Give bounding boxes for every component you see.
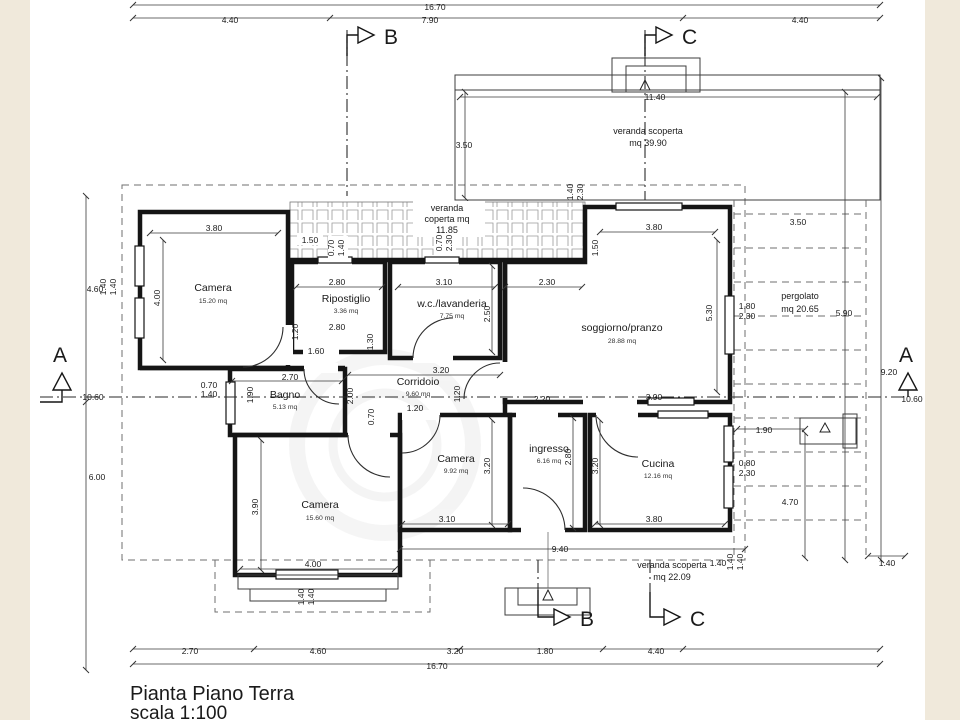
room-label-camera1: Camera — [194, 282, 232, 294]
dim-label: 2.30 — [539, 277, 556, 287]
window-camera1-a — [135, 246, 144, 286]
dim-label: 9.40 — [552, 544, 569, 554]
dim-label: 2.80 — [329, 277, 346, 287]
floor-plan-canvas: Camera 15.20 mq Ripostiglio 3.36 mq w.c.… — [0, 0, 960, 720]
dim-label: 1.40 — [879, 558, 896, 568]
dim-label: 3.20 — [447, 646, 464, 656]
dim-label: 4.40 — [792, 15, 809, 25]
section-letter-a-left: A — [53, 344, 67, 367]
dim-label: 0.70 — [434, 234, 444, 251]
window-north-b — [425, 257, 459, 263]
label-veranda-scoperta-top-1: veranda scoperta — [613, 126, 683, 136]
dim-label: 1.40 — [108, 278, 118, 295]
floor-plan-drawing: Camera 15.20 mq Ripostiglio 3.36 mq w.c.… — [0, 0, 960, 720]
dim-label: 0.70 — [366, 408, 376, 425]
dim-label: 1.50 — [302, 235, 319, 245]
section-letter-a-right: A — [899, 344, 913, 367]
window-cucina-right-a — [724, 426, 733, 462]
dim-label: 1.80 — [739, 301, 756, 311]
window-camera1-b — [135, 298, 144, 338]
label-veranda-scoperta-bottom-2: mq 22.09 — [653, 572, 691, 582]
dim-label: 5.30 — [704, 304, 714, 321]
label-veranda-coperta-2: coperta mq — [424, 214, 469, 224]
dim-label: 7.90 — [422, 15, 439, 25]
dim-label: 1.40 — [725, 553, 735, 570]
dim-label: 2.30 — [739, 311, 756, 321]
window-soggiorno-right — [725, 296, 734, 354]
room-label-ripostiglio: Ripostiglio — [322, 293, 371, 305]
dim-label: 6.00 — [89, 472, 106, 482]
dim-label: 2.80 — [563, 448, 573, 465]
dim-label: 4.40 — [648, 646, 665, 656]
window-soggiorno-top — [616, 203, 682, 210]
dim-label: 1.40 — [735, 553, 745, 570]
dim-label: 1.40 — [336, 239, 346, 256]
section-letter-b-top: B — [384, 26, 398, 49]
label-veranda-coperta-1: veranda — [431, 203, 464, 213]
dim-label: 1.40 — [710, 558, 727, 568]
dim-label: 3.20 — [482, 457, 492, 474]
room-label-wc: w.c./lavanderia — [416, 298, 487, 310]
dim-label: 1.50 — [590, 239, 600, 256]
dim-label: 3.20 — [433, 365, 450, 375]
dim-label: 1.20 — [290, 323, 300, 340]
dim-label: 0.80 — [739, 458, 756, 468]
dim-label: 0.70 — [326, 239, 336, 256]
dim-label: 3.90 — [250, 498, 260, 515]
room-label-cucina: Cucina — [642, 458, 675, 470]
dim-label: 2.20 — [534, 394, 551, 404]
dim-label: 2.70 — [182, 646, 199, 656]
dim-label: 3.80 — [206, 223, 223, 233]
room-area-corridoio: 9.60 mq — [406, 391, 431, 398]
dim-label: 3.80 — [646, 514, 663, 524]
room-area-cucina: 12.16 mq — [644, 473, 673, 480]
window-cucina-right-b — [724, 466, 733, 508]
dim-label: 4.60 — [310, 646, 327, 656]
section-letter-b-bottom: B — [580, 608, 594, 631]
label-veranda-scoperta-bottom-1: veranda scoperta — [637, 560, 707, 570]
dim-label: 1.40 — [201, 389, 218, 399]
label-pergolato-1: pergolato — [781, 291, 819, 301]
dim-label: 3.90 — [646, 392, 663, 402]
room-area-soggiorno: 28.88 mq — [608, 338, 637, 345]
dim-label: 1.40 — [565, 183, 575, 200]
dim-label: 11.40 — [645, 92, 666, 102]
window-bagno — [226, 382, 235, 424]
section-letter-c-bottom: C — [690, 608, 705, 631]
dim-label: 2.50 — [482, 305, 492, 322]
room-area-ingresso: 6.16 mq — [537, 458, 562, 465]
right-margin — [925, 0, 960, 720]
dim-label: 1.40 — [296, 588, 306, 605]
room-label-soggiorno: soggiorno/pranzo — [581, 322, 662, 334]
dim-label: 5.90 — [836, 308, 853, 318]
section-letter-c-top: C — [682, 26, 697, 49]
dim-label: 3.10 — [439, 514, 456, 524]
drawing-scale: scala 1:100 — [130, 703, 227, 720]
room-label-bagno: Bagno — [270, 389, 301, 401]
room-area-wc: 7.75 mq — [440, 313, 465, 320]
room-label-camera3: Camera — [437, 453, 475, 465]
dim-label: 2.80 — [329, 322, 346, 332]
window-cucina-top — [658, 411, 708, 418]
dim-label: 10.60 — [82, 392, 104, 402]
dim-label: 1.80 — [537, 646, 554, 656]
dim-label: 2.00 — [345, 387, 355, 404]
dim-label: 1.90 — [756, 425, 773, 435]
room-area-bagno: 5.13 mq — [273, 404, 298, 411]
dim-label: 10.60 — [901, 394, 923, 404]
room-area-camera2: 15.60 mq — [306, 515, 335, 522]
dim-label: 9.20 — [881, 367, 898, 377]
dim-label: 4.40 — [222, 15, 239, 25]
dim-label: 3.80 — [646, 222, 663, 232]
dim-label: 4.00 — [305, 559, 322, 569]
dim-label: 1.90 — [245, 386, 255, 403]
room-label-camera2: Camera — [301, 499, 339, 511]
dim-label: 1.40 — [306, 588, 316, 605]
dim-label: 4.00 — [152, 289, 162, 306]
dim-label: 3.20 — [590, 457, 600, 474]
room-area-camera3: 9.92 mq — [444, 468, 469, 475]
dim-label: 3.10 — [436, 277, 453, 287]
dim-label: 2.30 — [739, 468, 756, 478]
dim-label: 3.50 — [790, 217, 807, 227]
dim-label: 16.70 — [424, 2, 446, 12]
label-veranda-scoperta-top-2: mq 39.90 — [629, 138, 667, 148]
dim-label: 2.30 — [444, 234, 454, 251]
dim-label: 16.70 — [426, 661, 448, 671]
room-area-ripostiglio: 3.36 mq — [334, 308, 359, 315]
dim-label: 2.30 — [575, 183, 585, 200]
dim-label: 1.40 — [98, 278, 108, 295]
dim-label: 4.70 — [782, 497, 799, 507]
dim-label: 1.60 — [308, 346, 325, 356]
label-pergolato-2: mq 20.65 — [781, 304, 819, 314]
label-veranda-coperta-3: 11.85 — [436, 225, 458, 235]
dim-label: 1.20 — [452, 385, 462, 402]
dim-label: 1.30 — [365, 333, 375, 350]
drawing-title: Pianta Piano Terra — [130, 683, 295, 705]
room-label-corridoio: Corridoio — [397, 376, 440, 388]
dim-label: 2.70 — [282, 372, 299, 382]
left-margin — [0, 0, 30, 720]
dim-label: 1.20 — [407, 403, 424, 413]
room-area-camera1: 15.20 mq — [199, 298, 228, 305]
dim-label: 3.50 — [456, 140, 473, 150]
